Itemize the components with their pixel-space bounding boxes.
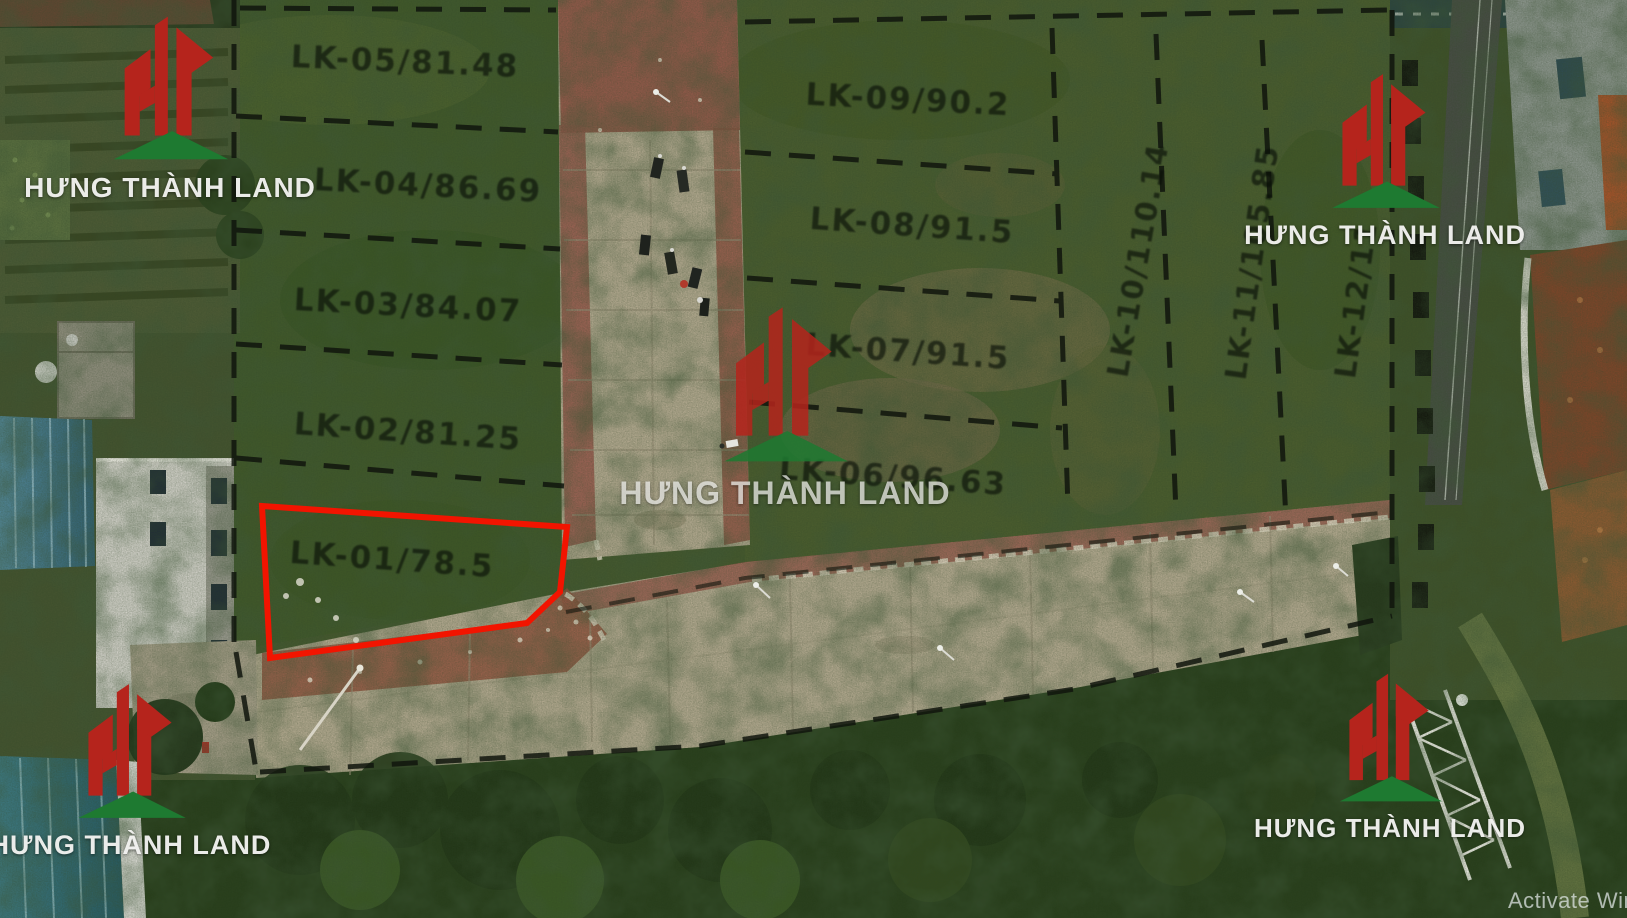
windows-activation-text: Activate Wind (1508, 888, 1627, 914)
aerial-land-plot-map: LK-05/81.48 LK-04/86.69 LK-03/84.07 LK-0… (0, 0, 1627, 918)
